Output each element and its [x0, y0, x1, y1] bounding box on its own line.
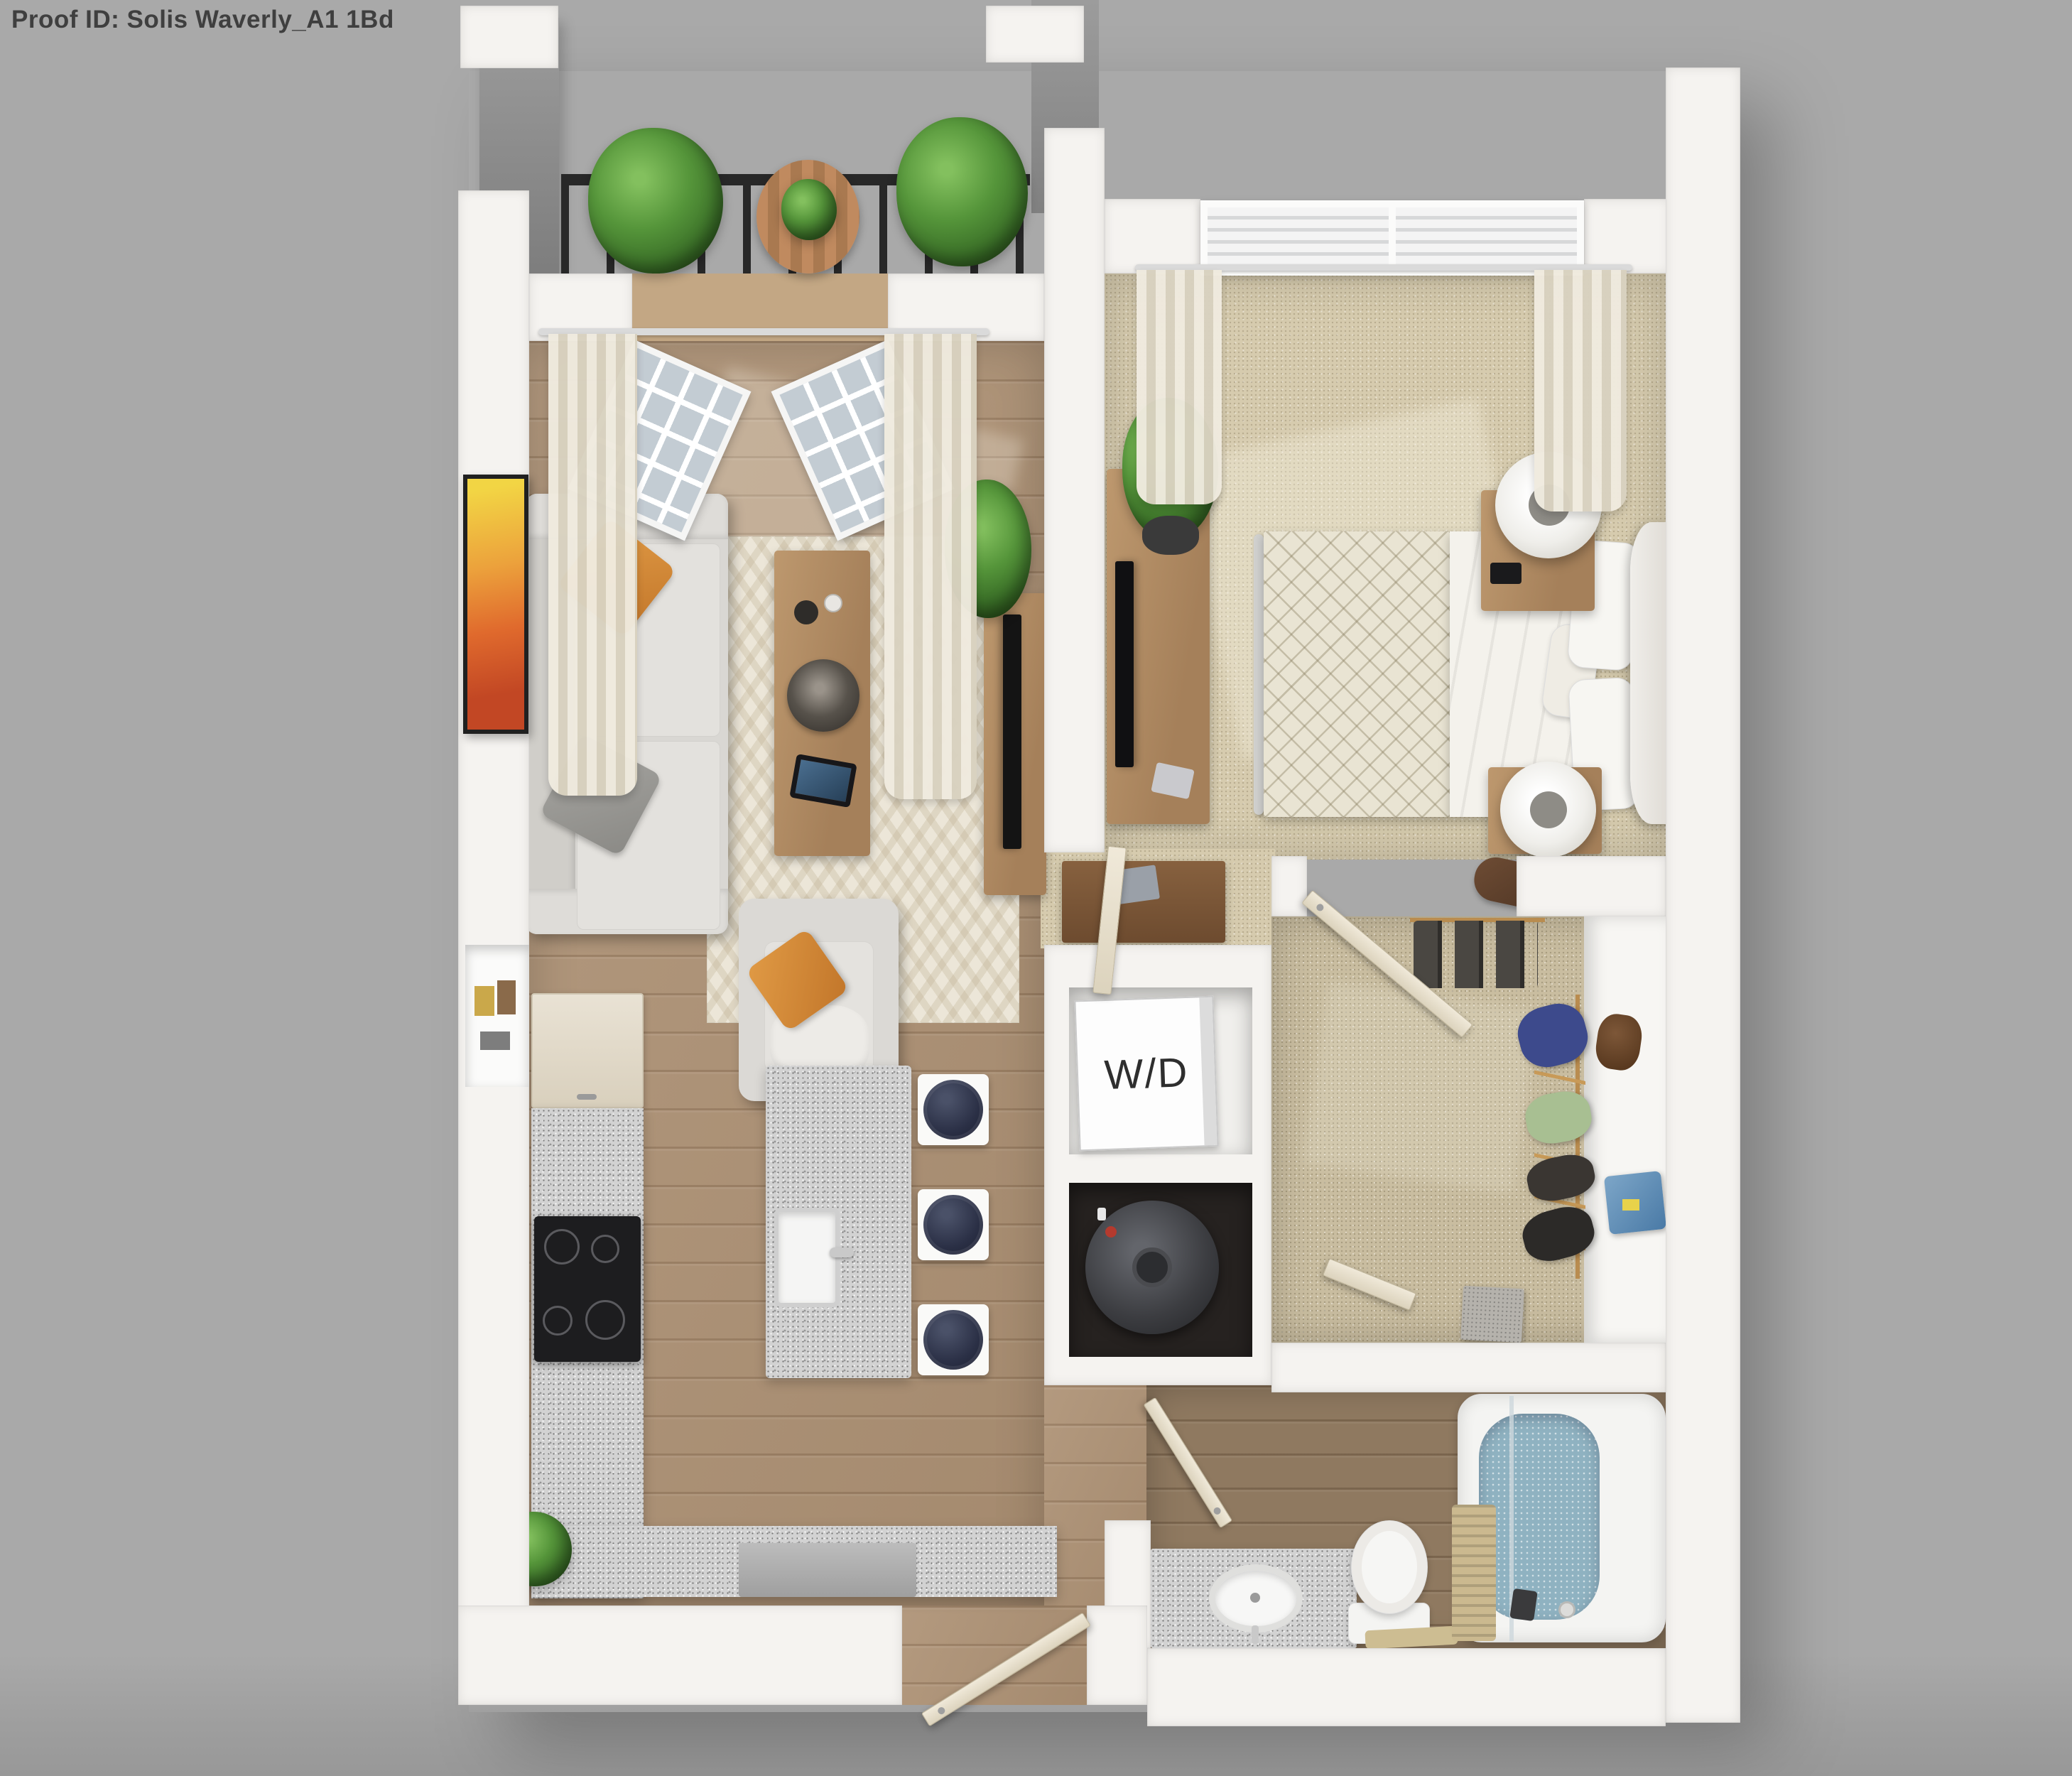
- decor-cup: [824, 594, 842, 612]
- balcony-plant-left: [588, 128, 723, 274]
- door-handle: [1213, 1506, 1222, 1516]
- bar-stool: [918, 1189, 989, 1260]
- curtain-living-right: [884, 334, 977, 799]
- wall-bottom-outer: [458, 1606, 902, 1705]
- tub-faucet: [1509, 1588, 1538, 1621]
- curtain-living-left: [548, 334, 637, 796]
- tv-screen: [1003, 614, 1021, 849]
- dishwasher-front: [739, 1543, 916, 1597]
- hanging-clothes-top: [1414, 921, 1538, 988]
- wall-closet-bathroom: [1271, 1343, 1666, 1392]
- stove-burner: [544, 1229, 580, 1265]
- wall-left-outer: [458, 190, 529, 1627]
- bed: [1254, 522, 1676, 824]
- water-heater-cap: [1132, 1247, 1172, 1287]
- stove-burner: [543, 1306, 573, 1336]
- wall-stub-top-right: [986, 6, 1084, 63]
- closet-shelf-right: [1584, 916, 1666, 1343]
- bar-stool-seat: [923, 1310, 983, 1370]
- box-sticker: [1622, 1199, 1639, 1211]
- balcony-table-plant: [781, 179, 837, 240]
- bar-stool-seat: [923, 1080, 983, 1139]
- stove-burner: [591, 1235, 619, 1263]
- entry-threshold-floor: [902, 1606, 1087, 1705]
- alarm-clock: [1490, 563, 1522, 584]
- door-handle: [936, 1706, 946, 1716]
- desk-monitor: [1115, 561, 1134, 767]
- washer-dryer-label: W/D: [1103, 1048, 1189, 1098]
- decor-vase: [794, 600, 818, 624]
- sink-drain: [1250, 1593, 1260, 1603]
- floorplan-render: W/D Proof ID: Solis Waverly_A1 1Bd: [0, 0, 2072, 1776]
- bar-stool: [918, 1304, 989, 1375]
- bath-mat: [1452, 1505, 1496, 1641]
- bathtub-water: [1479, 1414, 1600, 1620]
- island-sink: [774, 1208, 840, 1307]
- wall-bedroom-bottom: [1517, 856, 1666, 916]
- wine-glass: [1558, 1601, 1575, 1618]
- heater-valve-red: [1105, 1226, 1117, 1238]
- bar-stool-seat: [923, 1195, 983, 1255]
- wall-living-bedroom-divider: [1044, 128, 1105, 852]
- curtain-bedroom-right: [1534, 270, 1627, 511]
- proof-id-label: Proof ID: Solis Waverly_A1 1Bd: [11, 6, 394, 34]
- curtain-bedroom-left: [1137, 270, 1222, 504]
- bedroom-plant-pot: [1142, 516, 1199, 555]
- stove-burner: [585, 1300, 625, 1340]
- closet-storage-cube: [1460, 1286, 1524, 1343]
- heater-valve-white: [1097, 1208, 1106, 1220]
- wall-niche-shelf: [465, 945, 529, 1087]
- wall-bedroom-top: [1584, 199, 1669, 274]
- washer-dryer-unit: W/D: [1074, 996, 1218, 1152]
- wall-right-outer: [1666, 67, 1740, 1723]
- pantry-cabinet: [531, 993, 644, 1108]
- island-faucet: [830, 1247, 854, 1257]
- toilet-bowl: [1351, 1520, 1428, 1614]
- shelf-item: [480, 1032, 510, 1050]
- door-handle: [1315, 902, 1325, 912]
- bed-patterned-blanket: [1264, 531, 1450, 817]
- decor-tray: [787, 659, 859, 732]
- window-mullion: [1389, 207, 1396, 269]
- bed-foot-rail: [1254, 534, 1264, 815]
- sink-faucet: [1252, 1625, 1259, 1644]
- wall-bottom-outer: [1087, 1606, 1147, 1705]
- wall-bedroom-top: [1105, 199, 1200, 274]
- wall-stub-top-left: [460, 6, 558, 68]
- cabinet-handle: [577, 1094, 597, 1100]
- bar-stool: [918, 1074, 989, 1145]
- wall-art: [463, 475, 528, 734]
- shelf-item: [497, 980, 516, 1014]
- wall-bedroom-bottom: [1271, 856, 1307, 916]
- shelf-item: [474, 986, 494, 1016]
- stove-cooktop: [534, 1216, 641, 1362]
- wall-bottom-outer: [1147, 1648, 1666, 1726]
- balcony-plant-right: [896, 117, 1028, 266]
- nightstand-lamp-shade: [1530, 791, 1567, 828]
